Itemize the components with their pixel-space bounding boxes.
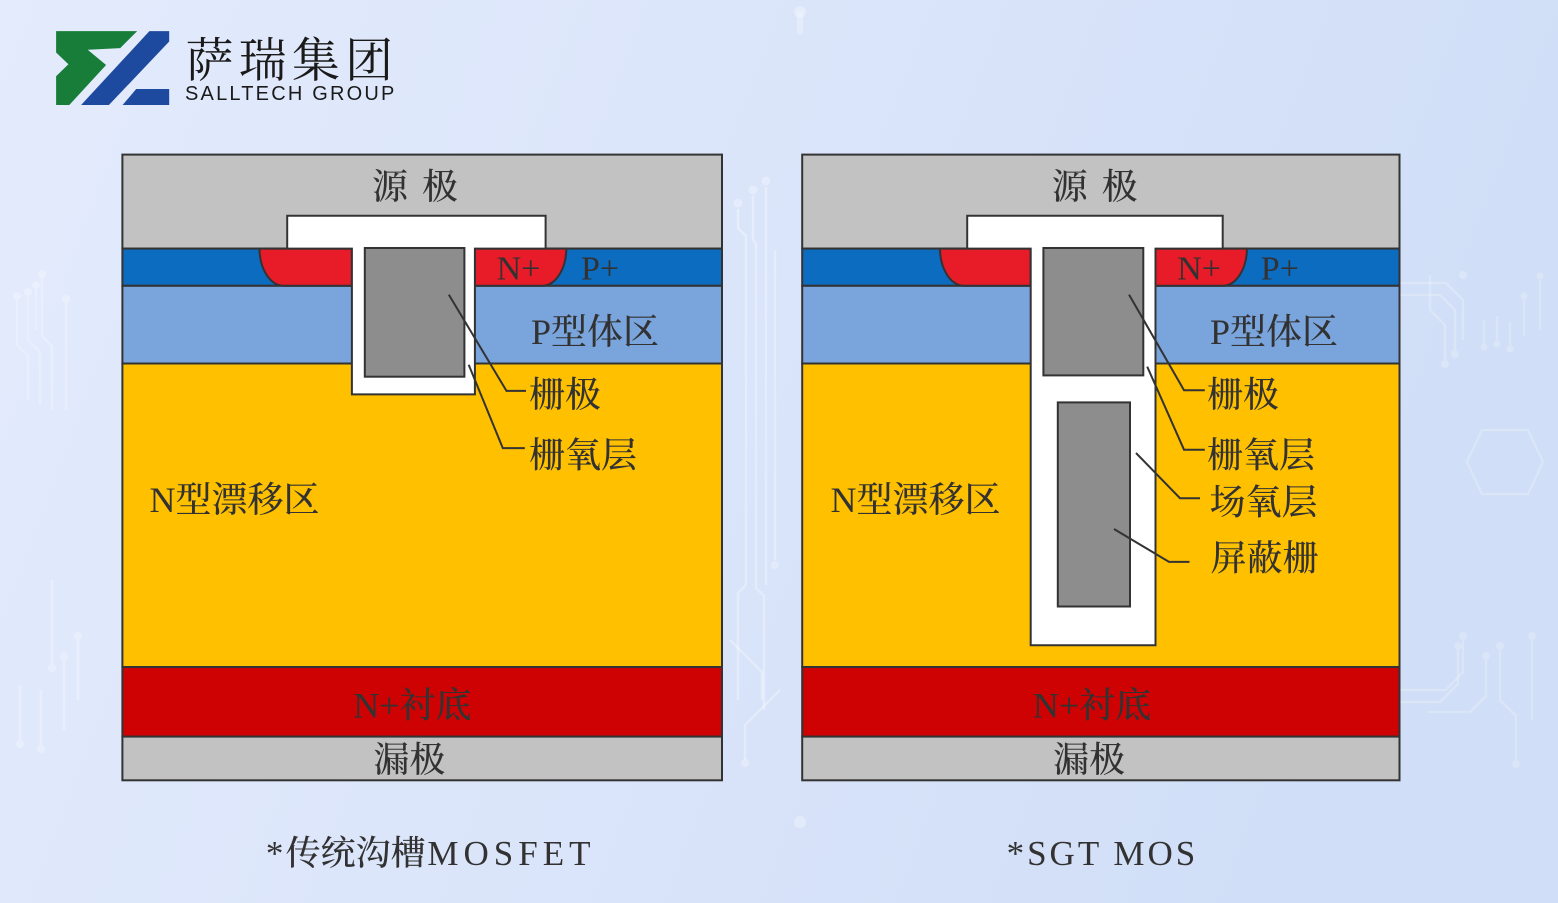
svg-text:P: P — [1210, 312, 1230, 352]
svg-text:N: N — [831, 480, 857, 520]
svg-text:MOSFET: MOSFET — [427, 834, 595, 873]
svg-text:P+: P+ — [581, 251, 619, 288]
svg-text:N+: N+ — [497, 251, 541, 288]
svg-text:SALLTECH GROUP: SALLTECH GROUP — [185, 83, 397, 105]
svg-text:N+: N+ — [1177, 251, 1221, 288]
svg-text:*SGT MOS: *SGT MOS — [1007, 834, 1199, 873]
svg-text:P: P — [531, 312, 551, 352]
svg-text:N+: N+ — [1033, 686, 1079, 726]
svg-text:P+: P+ — [1261, 251, 1299, 288]
svg-text:*: * — [266, 834, 284, 873]
svg-text:N+: N+ — [353, 686, 399, 726]
svg-text:N: N — [150, 480, 176, 520]
